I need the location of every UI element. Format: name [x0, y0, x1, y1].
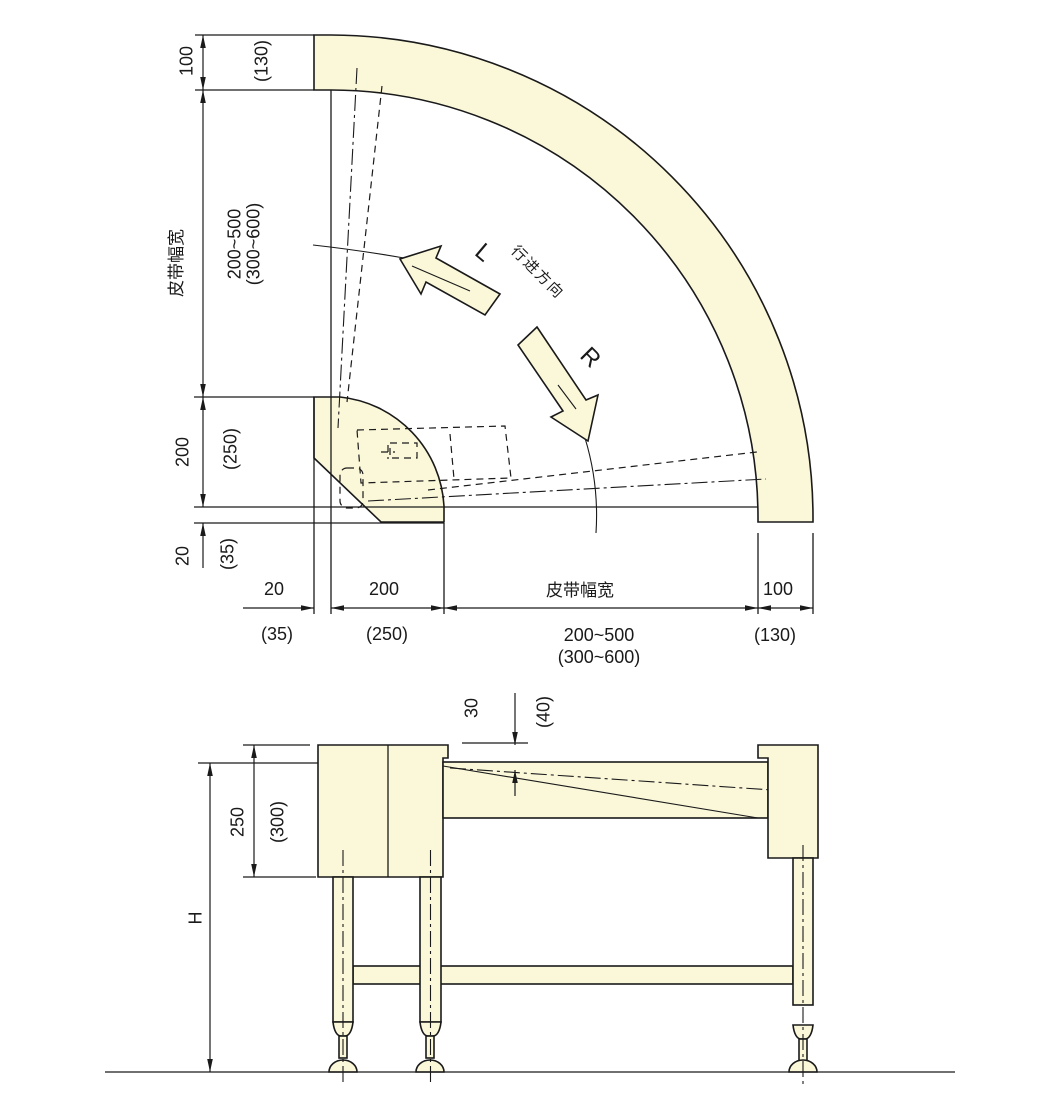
dim-label-35-left: (35) [217, 538, 237, 570]
conveyor-dimension-drawing: 100 (130) 皮带幅宽 200~500 (300~600) 200 (25… [0, 0, 1050, 1110]
dim-label-200-left: 200 [172, 437, 192, 467]
dim-label-20-bottom: 20 [264, 579, 284, 599]
plan-bottom-dimension-chain: 20 (35) 200 (250) 皮带幅宽 200~500 (300~600)… [243, 579, 813, 667]
direction-arrow-right [518, 327, 598, 441]
dim-label-250-side: 250 [227, 807, 247, 837]
plan-view: 100 (130) 皮带幅宽 200~500 (300~600) 200 (25… [167, 35, 813, 667]
dim-label-250-left: (250) [220, 428, 240, 470]
belt-center-arc-bottom [585, 438, 597, 533]
dim-label-100-left: 100 [176, 46, 196, 76]
dim-label-40: (40) [533, 696, 553, 728]
dim-label-130-left: (130) [251, 40, 271, 82]
dim-label-200-bottom: 200 [369, 579, 399, 599]
dim-label-300-side: (300) [267, 801, 287, 843]
hidden-drive-divider [450, 434, 454, 479]
alt-belt-edge-top [347, 86, 382, 402]
plan-left-dimension-chain: 100 (130) 皮带幅宽 200~500 (300~600) 200 (25… [167, 35, 271, 570]
dim-label-range-alt-bottom: (300~600) [558, 647, 641, 667]
right-arrow-shape [518, 327, 598, 441]
dim-label-range-alt-left: (300~600) [243, 203, 263, 286]
side-view: H 250 (300) 30 (40) [105, 693, 955, 1085]
cross-brace [353, 966, 793, 984]
dim-label-250-bottom: (250) [366, 624, 408, 644]
travel-direction-label: 行进方向 [507, 242, 567, 302]
dim-label-belt-width-bottom: 皮带幅宽 [546, 581, 614, 600]
dim-label-range-left: 200~500 [224, 209, 244, 280]
box-height-dimension: 250 (300) [227, 745, 316, 877]
belt-center-arc-top [313, 245, 404, 258]
mark-right-r: R [575, 342, 606, 373]
mark-left-l: L [470, 238, 498, 267]
drawing-canvas: 100 (130) 皮带幅宽 200~500 (300~600) 200 (25… [0, 0, 1050, 1110]
drive-box [318, 745, 448, 877]
dim-label-range-bottom: 200~500 [564, 625, 635, 645]
dim-label-100-bottom: 100 [763, 579, 793, 599]
dim-label-35-bottom: (35) [261, 624, 293, 644]
dim-label-30: 30 [461, 698, 481, 718]
dim-label-130-bottom: (130) [754, 625, 796, 645]
dim-label-belt-width-left: 皮带幅宽 [167, 229, 186, 297]
height-dimension: H [185, 763, 318, 1072]
dim-label-20-left: 20 [172, 546, 192, 566]
inner-hub [314, 397, 444, 522]
dim-label-height: H [185, 912, 205, 925]
